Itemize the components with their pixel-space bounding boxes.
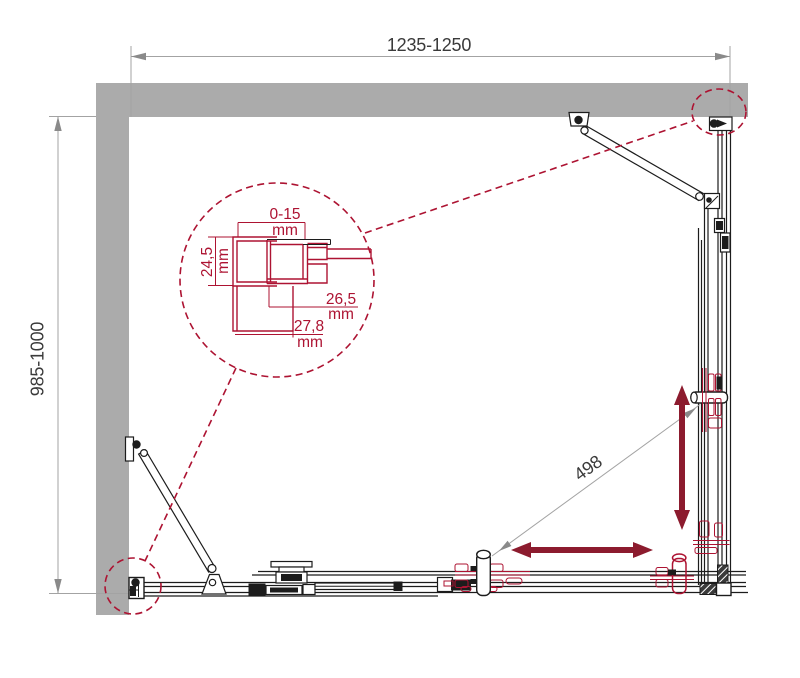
corner-post — [717, 583, 732, 596]
arrow-left-icon — [131, 53, 146, 60]
handle-cap — [477, 550, 491, 558]
roller-assembly-bottom — [455, 564, 530, 592]
width-dimension-label: 1235-1250 — [387, 35, 471, 55]
sliding-direction-arrows — [511, 385, 690, 558]
wall-anchor-top-right — [710, 117, 733, 131]
bracket — [303, 585, 315, 595]
magnified-profile-drawing: 0-15 mm 24,5 mm 26,5 mm 27,8 mm — [199, 206, 371, 351]
glass-panel-section — [327, 249, 371, 259]
bracket-block — [249, 584, 266, 596]
support-bar — [139, 450, 216, 572]
clamp-block — [281, 574, 302, 581]
rail-hardware-left — [249, 582, 403, 596]
connector-profile-section — [308, 244, 328, 284]
adjustment-value: 0-15 — [269, 206, 300, 223]
lower-panel-section — [233, 286, 293, 331]
roller — [455, 564, 468, 572]
foot-screw — [209, 579, 215, 585]
support-bar-bottom-left — [126, 437, 227, 594]
arrow-up-icon — [54, 117, 61, 132]
clamp-neck — [279, 567, 304, 572]
dimension-door-travel: 498 — [492, 405, 700, 557]
pivot-hole — [581, 127, 588, 134]
right-frame-hardware-upper — [715, 219, 731, 253]
roller-axle — [668, 570, 676, 576]
base-value: 27,8 — [294, 318, 324, 335]
profile-depth-value: 24,5 — [199, 247, 216, 277]
base-unit: mm — [297, 334, 323, 351]
technical-drawing-page: 1235-1250 985-1000 — [0, 0, 800, 678]
frame-profile-section — [267, 240, 308, 284]
roller — [709, 374, 715, 391]
leader-lines — [145, 121, 693, 561]
profile-block — [130, 586, 136, 596]
wall-profile-bottom-left — [129, 578, 144, 599]
arrow-end-icon — [684, 408, 696, 418]
bracket-block — [270, 588, 298, 593]
double-arrow-vertical-icon — [674, 385, 690, 530]
dimension-line — [492, 405, 700, 557]
roller-carrier — [709, 418, 722, 428]
roller — [656, 580, 668, 588]
roller-axle — [717, 377, 722, 390]
offset-unit: mm — [328, 306, 354, 323]
arrow-right-icon — [715, 53, 730, 60]
roller — [490, 564, 503, 572]
pivot-hole — [208, 565, 216, 573]
profile-depth-unit: mm — [215, 248, 232, 274]
pivot-hole — [141, 450, 148, 457]
arrow-end-icon — [499, 541, 511, 551]
frame-right-side — [691, 117, 732, 592]
door-handle-bottom — [477, 550, 491, 595]
glass-clamp-fixed-panel — [271, 562, 312, 584]
detail-dim-adjustment: 0-15 mm — [238, 206, 305, 239]
clamp-plate — [271, 562, 312, 568]
pivot-screw — [706, 197, 712, 203]
bracket-block — [716, 221, 723, 230]
pivot-screw — [132, 440, 140, 448]
bracket — [438, 578, 453, 592]
detail-dim-profile-depth: 24,5 mm — [199, 237, 233, 286]
adjustment-unit: mm — [272, 222, 298, 239]
corner-profile-hatched — [700, 584, 716, 595]
bracket-block — [722, 236, 729, 249]
door-handle-right — [691, 392, 728, 403]
wall-plate — [126, 437, 134, 461]
shower-enclosure-diagram: 1235-1250 985-1000 — [0, 0, 800, 678]
support-bar-top-right — [569, 113, 720, 209]
wall-left — [96, 83, 129, 615]
guide-end-block — [394, 582, 403, 592]
corner-profile-hatched — [718, 565, 729, 583]
door-travel-label: 498 — [570, 451, 606, 485]
depth-dimension-label: 985-1000 — [28, 322, 48, 397]
pivot-hole — [696, 193, 704, 201]
handle-cap — [691, 392, 697, 403]
double-arrow-horizontal-icon — [511, 542, 653, 558]
wall-top — [96, 83, 748, 117]
arrow-down-icon — [54, 579, 61, 594]
pivot-screw — [574, 116, 582, 124]
detail-dim-base: 27,8 mm — [235, 318, 324, 351]
